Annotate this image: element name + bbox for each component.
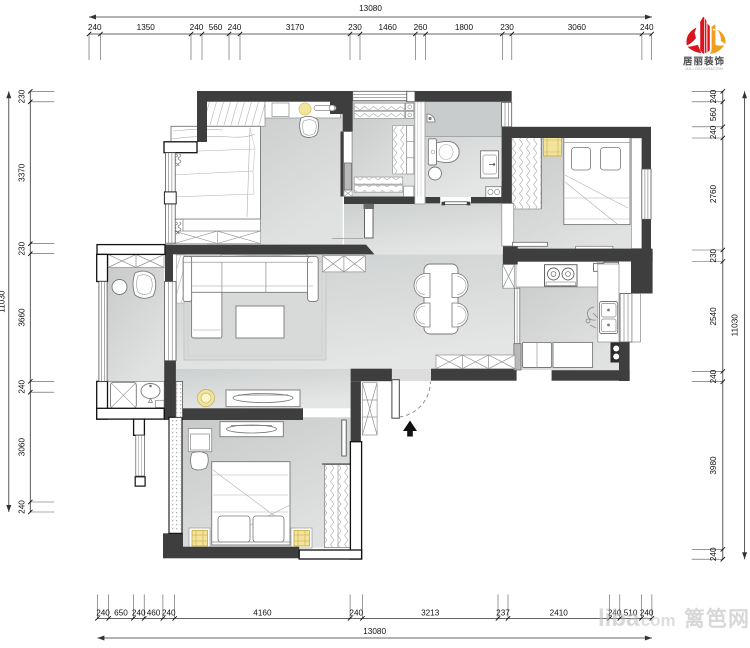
- svg-text:13080: 13080: [359, 4, 382, 13]
- svg-text:240: 240: [190, 23, 204, 32]
- svg-text:260: 260: [414, 23, 428, 32]
- svg-text:JULI DECORATION: JULI DECORATION: [685, 67, 723, 71]
- svg-text:1350: 1350: [137, 23, 156, 32]
- svg-text:240: 240: [709, 369, 718, 383]
- svg-text:230: 230: [348, 23, 362, 32]
- svg-text:230: 230: [18, 241, 27, 255]
- svg-text:650: 650: [114, 609, 128, 618]
- svg-text:560: 560: [209, 23, 223, 32]
- svg-text:4160: 4160: [253, 609, 272, 618]
- svg-text:240: 240: [18, 500, 27, 514]
- svg-text:篱笆网: 篱笆网: [684, 607, 750, 631]
- svg-text:240: 240: [640, 23, 654, 32]
- svg-text:240: 240: [709, 125, 718, 139]
- svg-text:240: 240: [709, 547, 718, 561]
- svg-text:230: 230: [18, 89, 27, 103]
- svg-text:1800: 1800: [455, 23, 474, 32]
- svg-text:240: 240: [132, 609, 146, 618]
- svg-text:11030: 11030: [0, 290, 7, 313]
- svg-text:240: 240: [709, 89, 718, 103]
- svg-text:560: 560: [709, 107, 718, 121]
- svg-text:2760: 2760: [709, 184, 718, 203]
- svg-text:3060: 3060: [568, 23, 587, 32]
- svg-text:240: 240: [96, 609, 110, 618]
- svg-text:2540: 2540: [709, 307, 718, 326]
- svg-text:3060: 3060: [18, 438, 27, 457]
- svg-text:230: 230: [709, 248, 718, 262]
- svg-text:2410: 2410: [550, 609, 569, 618]
- svg-text:3213: 3213: [421, 609, 440, 618]
- svg-text:240: 240: [349, 609, 363, 618]
- svg-text:1460: 1460: [379, 23, 398, 32]
- svg-text:13080: 13080: [363, 627, 386, 636]
- svg-text:.com: .com: [636, 611, 676, 630]
- svg-text:230: 230: [500, 23, 514, 32]
- svg-text:460: 460: [147, 609, 161, 618]
- svg-text:liba: liba: [598, 605, 640, 632]
- svg-text:3660: 3660: [18, 308, 27, 327]
- svg-text:237: 237: [496, 609, 510, 618]
- svg-text:11030: 11030: [731, 314, 740, 337]
- svg-text:3370: 3370: [18, 163, 27, 182]
- svg-text:居丽装饰: 居丽装饰: [683, 56, 725, 68]
- svg-text:240: 240: [228, 23, 242, 32]
- svg-text:240: 240: [18, 380, 27, 394]
- svg-text:3170: 3170: [286, 23, 305, 32]
- svg-text:3980: 3980: [709, 456, 718, 475]
- svg-text:240: 240: [162, 609, 176, 618]
- svg-text:240: 240: [88, 23, 102, 32]
